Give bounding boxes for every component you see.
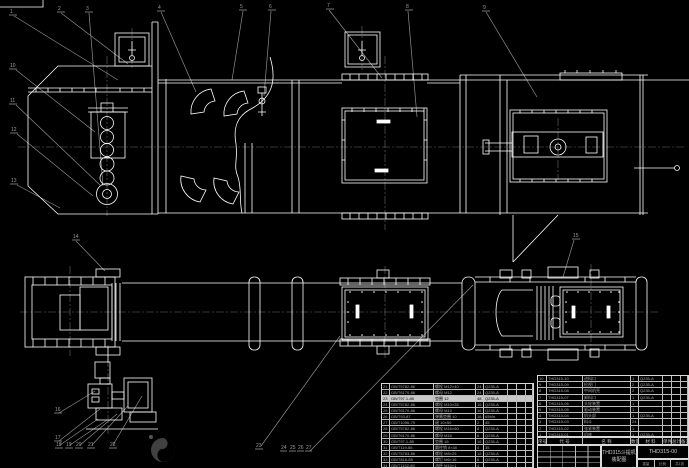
bom-cell: Q235-A: [639, 388, 663, 393]
bom-cell: 张紧装置: [583, 426, 631, 431]
bom-cell: [508, 396, 517, 401]
bom-cell: [672, 382, 681, 387]
sheet-info-weight: 重量: [638, 460, 655, 467]
bom-cell: [672, 388, 681, 393]
bom-cell: [526, 402, 533, 407]
bom-cell: GB/T97.1-85: [390, 439, 434, 444]
bom-cell: [672, 395, 681, 400]
bom-cell: 2: [538, 426, 547, 431]
bom-cell: THD315-08: [547, 388, 583, 393]
bom-cell: GB/T5783-86: [390, 451, 434, 456]
bom-cell: 1: [631, 426, 639, 431]
bom-cell: [508, 426, 517, 431]
bom-cell: 备注: [681, 438, 688, 445]
bom-cell: 45: [484, 420, 508, 425]
flange-ring-1: [249, 277, 260, 350]
bom-cell: GB/T5782-86: [390, 426, 434, 431]
bom-cell: [639, 407, 663, 412]
bom-cell: 22: [382, 390, 390, 395]
bom-cell: 4: [538, 413, 547, 418]
bom-cell: [508, 402, 517, 407]
bom-cell: [526, 384, 533, 389]
bom-cell: GB/T6170-86: [390, 433, 434, 438]
bom-cell: 12: [476, 451, 484, 456]
bom-cell: [508, 433, 517, 438]
bom-cell: [681, 395, 688, 400]
bom-cell: [639, 426, 663, 431]
bom-cell: 33: [382, 457, 390, 462]
drive-unit: [86, 347, 158, 429]
centerlines: [18, 26, 686, 434]
bom-cell: 24: [631, 419, 639, 424]
callout: 16: [55, 407, 61, 413]
bom-cell: [681, 376, 688, 381]
bom-cell: 1: [631, 395, 639, 400]
callout: 25: [290, 445, 296, 451]
bom-cell: [517, 402, 526, 407]
flange-ring-2: [292, 277, 303, 350]
bom-cell: [663, 382, 672, 387]
bom-cell: [663, 388, 672, 393]
bom-cell: [672, 376, 681, 381]
callout: 26: [298, 445, 304, 451]
bom-cell: [517, 457, 526, 462]
callout: 14: [73, 234, 79, 240]
bom-cell: 料斗: [583, 419, 631, 424]
bom-cell: [517, 384, 526, 389]
bom-cell: 螺母 M12: [434, 390, 476, 395]
bom-cell: 25: [382, 408, 390, 413]
bom-cell: Q235-A: [639, 395, 663, 400]
bom-cell: [526, 439, 533, 444]
callout: 9: [483, 5, 486, 11]
bom-cell: 中间机壳: [583, 388, 631, 393]
bom-cell: 垫圈 12: [434, 396, 476, 401]
bom-cell: 头轮装置: [583, 401, 631, 406]
revision-signature-grid: [537, 445, 601, 468]
casing-flanges: [245, 75, 466, 213]
callout: 10: [10, 63, 16, 69]
bom-cell: 16: [476, 402, 484, 407]
take-up-device: [88, 103, 128, 205]
bom-cell: [508, 457, 517, 462]
bom-cell: [672, 426, 681, 431]
bom-row: 34GB/T1152-89油杯 M10×14: [382, 463, 533, 468]
callout: 1: [10, 9, 13, 15]
bom-cell: 2: [631, 388, 639, 393]
bom-cell: 圆柱销 8×30: [434, 445, 476, 450]
bom-cell: 10: [538, 376, 547, 381]
bom-cell: THD315-06: [547, 401, 583, 406]
bom-cell: 8: [476, 426, 484, 431]
bom-cell: Q235-A: [484, 408, 508, 413]
bom-cell: Q235-A: [484, 457, 508, 462]
bom-cell: [526, 390, 533, 395]
bom-cell: 机头部: [583, 413, 631, 418]
bom-cell: Q235-A: [484, 384, 508, 389]
bom-cell: [517, 408, 526, 413]
bom-cell: [681, 426, 688, 431]
bom-cell: 键 10×50: [434, 420, 476, 425]
bom-cell: 6: [538, 401, 547, 406]
bom-cell: [526, 396, 533, 401]
bom-cell: [517, 463, 526, 468]
projection-lines: [513, 215, 558, 262]
bom-cell: 1: [631, 407, 639, 412]
bom-cell: [663, 401, 672, 406]
bom-cell: 65Mn: [484, 414, 508, 419]
bom-cell: [508, 414, 517, 419]
bom-cell: 1: [631, 401, 639, 406]
bom-cell: 24: [476, 390, 484, 395]
bom-cell: [526, 420, 533, 425]
bom-cell: 名 称: [583, 438, 631, 445]
bom-cell: [526, 445, 533, 450]
bom-cell: [517, 433, 526, 438]
bom-row: 序号代 号名 称数量材 料单件总计备注: [538, 438, 688, 445]
bom-cell: Q235-A: [484, 396, 508, 401]
bom-cell: 24: [382, 402, 390, 407]
bom-cell: [508, 420, 517, 425]
bom-cell: 7: [538, 395, 547, 400]
callout: 8: [406, 4, 409, 10]
bom-cell: 代 号: [547, 438, 583, 445]
bom-cell: 检视门: [583, 382, 631, 387]
head-section-elevation: [483, 70, 680, 215]
bom-cell: GB/T119-86: [390, 445, 434, 450]
callout: 15: [573, 233, 579, 239]
bom-cell: 35: [484, 445, 508, 450]
bom-cell: [681, 401, 688, 406]
callout: 17: [55, 435, 61, 441]
bom-cell: 螺栓 M10×35: [434, 402, 476, 407]
callout: 11: [10, 98, 15, 104]
bom-cell: 数量: [631, 438, 639, 445]
bom-cell: 2: [476, 420, 484, 425]
elevation-view: [0, 0, 689, 219]
bom-cell: 9: [538, 382, 547, 387]
bom-cell: 螺栓 M12×40: [434, 384, 476, 389]
drawing-type: 装配图: [602, 457, 636, 463]
cad-canvas[interactable]: 1 2 3 4 5 6 7 8 9 10 11 12 13 14 15 16 1…: [0, 0, 689, 468]
bom-cell: Q235-A: [484, 451, 508, 456]
bom-cell: [681, 407, 688, 412]
bom-cell: [663, 407, 672, 412]
bom-cell: 32: [382, 451, 390, 456]
bom-cell: 螺栓 M16×60: [434, 426, 476, 431]
bom-cell: [526, 433, 533, 438]
bom-cell: 4: [476, 463, 484, 468]
bom-cell: [681, 413, 688, 418]
bom-cell: [508, 463, 517, 468]
bom-table-assemblies: 10THD315-10进料口1Q235-A9THD315-09检视门2Q235-…: [537, 375, 689, 437]
bom-cell: [672, 401, 681, 406]
bom-cell: [526, 408, 533, 413]
bom-cell: 3: [538, 419, 547, 424]
bom-cell: 8: [476, 433, 484, 438]
bom-cell: 29: [382, 433, 390, 438]
bom-cell: [639, 419, 663, 424]
bom-cell: [508, 439, 517, 444]
head-section-plan: [462, 267, 647, 360]
bom-cell: 总计: [672, 438, 681, 445]
bom-cell: 16: [476, 439, 484, 444]
bom-cell: [508, 451, 517, 456]
bom-cell: 16: [476, 414, 484, 419]
bom-cell: [484, 463, 508, 468]
bom-cell: 弹簧垫圈 10: [434, 414, 476, 419]
callout: 18: [56, 442, 62, 448]
bom-cell: 螺栓 M8×25: [434, 451, 476, 456]
bom-header-row: 序号代 号名 称数量材 料单件总计备注: [537, 437, 689, 445]
bom-cell: GB/T93-87: [390, 414, 434, 419]
bom-cell: 4: [476, 445, 484, 450]
bom-cell: [681, 419, 688, 424]
drawing-number: THD315-00: [637, 445, 689, 459]
bom-cell: GB/T5782-86: [390, 402, 434, 407]
callout: 23: [256, 443, 262, 449]
bom-cell: 螺钉 M6×16: [434, 457, 476, 462]
bom-cell: 8: [538, 388, 547, 393]
bom-cell: 1: [631, 413, 639, 418]
bom-cell: THD315-02: [547, 426, 583, 431]
bom-cell: [517, 414, 526, 419]
bom-cell: [681, 388, 688, 393]
bom-cell: Q235-A: [484, 390, 508, 395]
bom-cell: [508, 390, 517, 395]
bom-cell: [517, 396, 526, 401]
bom-cell: GB/T6170-86: [390, 408, 434, 413]
bom-cell: THD315-07: [547, 395, 583, 400]
callout: 5: [240, 4, 243, 10]
callout: 27: [306, 445, 312, 451]
bom-cell: Q235-A: [639, 413, 663, 418]
sheet-info-pages: 共1张: [671, 460, 688, 467]
callout: 19: [66, 442, 72, 448]
bom-cell: 31: [382, 445, 390, 450]
bom-cell: GB/T818-85: [390, 457, 434, 462]
bom-cell: THD315-09: [547, 382, 583, 387]
bom-cell: GB/T1152-89: [390, 463, 434, 468]
bom-cell: 48: [476, 396, 484, 401]
bom-cell: 16: [476, 408, 484, 413]
bom-cell: [663, 395, 672, 400]
bom-cell: [672, 407, 681, 412]
bom-cell: 螺母 M16: [434, 433, 476, 438]
callout: 22: [110, 442, 116, 448]
bom-cell: GB/T97.1-85: [390, 396, 434, 401]
callout: 4: [158, 5, 161, 11]
bom-cell: [663, 426, 672, 431]
bom-cell: [526, 451, 533, 456]
bom-cell: GB/T1096-79: [390, 420, 434, 425]
buckets: [181, 89, 248, 204]
bom-cell: THD315-04: [547, 413, 583, 418]
bom-cell: [508, 384, 517, 389]
bom-cell: 34: [382, 463, 390, 468]
bom-cell: 序号: [538, 438, 547, 445]
sheet-info-scale: 比例: [655, 460, 672, 467]
bom-cell: [508, 445, 517, 450]
boot-shelf: [28, 88, 152, 92]
bom-cell: [517, 426, 526, 431]
bom-cell: 材 料: [639, 438, 663, 445]
bom-cell: [517, 445, 526, 450]
bom-cell: 单件: [663, 438, 672, 445]
callout: 20: [76, 442, 82, 448]
bom-cell: [517, 439, 526, 444]
callout: 3: [86, 6, 89, 12]
bom-cell: 进料口: [583, 376, 631, 381]
bom-cell: 21: [382, 384, 390, 389]
bom-cell: [672, 413, 681, 418]
bom-cell: Q235-A: [484, 433, 508, 438]
bom-cell: [526, 457, 533, 462]
bom-cell: 28: [382, 426, 390, 431]
bom-cell: 23: [382, 396, 390, 401]
bom-cell: [663, 413, 672, 418]
bom-cell: GB/T5782-86: [390, 384, 434, 389]
stamp-blob: [149, 435, 175, 462]
callout: 2: [58, 6, 61, 12]
bom-cell: Q235-A: [484, 402, 508, 407]
bom-cell: 卸料口: [583, 395, 631, 400]
bom-cell: [526, 463, 533, 468]
bom-cell: 螺母 M10: [434, 408, 476, 413]
bom-table-standard-parts: 21GB/T5782-86螺栓 M12×4024Q235-A22GB/T6170…: [381, 383, 534, 468]
bom-cell: 8: [476, 457, 484, 462]
bom-cell: 1: [631, 376, 639, 381]
bom-cell: [681, 382, 688, 387]
callout: 13: [11, 178, 17, 184]
bom-cell: [639, 401, 663, 406]
bom-cell: 5: [538, 407, 547, 412]
title-block-name: THD315斗提机 装配图: [601, 445, 637, 468]
bom-cell: THD315-05: [547, 407, 583, 412]
callout: 21: [88, 442, 94, 448]
bom-cell: [663, 419, 672, 424]
bom-cell: 27: [382, 420, 390, 425]
bom-cell: [526, 414, 533, 419]
bom-cell: 垫圈 16: [434, 439, 476, 444]
bom-cell: 2: [631, 382, 639, 387]
callout: 12: [11, 127, 17, 133]
bom-cell: THD315-03: [547, 419, 583, 424]
bom-cell: Q235-A: [484, 426, 508, 431]
callout: 6: [269, 4, 272, 10]
bom-cell: 油杯 M10×1: [434, 463, 476, 468]
bom-cell: [508, 408, 517, 413]
callout: 24: [281, 445, 287, 451]
bom-cell: 驱动装置: [583, 407, 631, 412]
sheet-info-cells: 重量 比例 共1张: [637, 459, 689, 468]
bom-cell: 30: [382, 439, 390, 444]
sheet-border-corner: [0, 0, 43, 7]
bom-cell: Q235-A: [484, 439, 508, 444]
bom-cell: Q235-A: [639, 382, 663, 387]
callout: 7: [327, 3, 330, 9]
bom-cell: [517, 420, 526, 425]
bom-cell: GB/T6170-86: [390, 390, 434, 395]
bom-cell: [672, 419, 681, 424]
bom-cell: 24: [476, 384, 484, 389]
product-name: THD315斗提机: [602, 450, 636, 456]
bom-cell: THD315-10: [547, 376, 583, 381]
bom-cell: [526, 426, 533, 431]
bom-cell: [517, 451, 526, 456]
bom-cell: Q235-A: [639, 376, 663, 381]
bom-cell: [517, 390, 526, 395]
bom-cell: [663, 376, 672, 381]
bom-cell: 26: [382, 414, 390, 419]
